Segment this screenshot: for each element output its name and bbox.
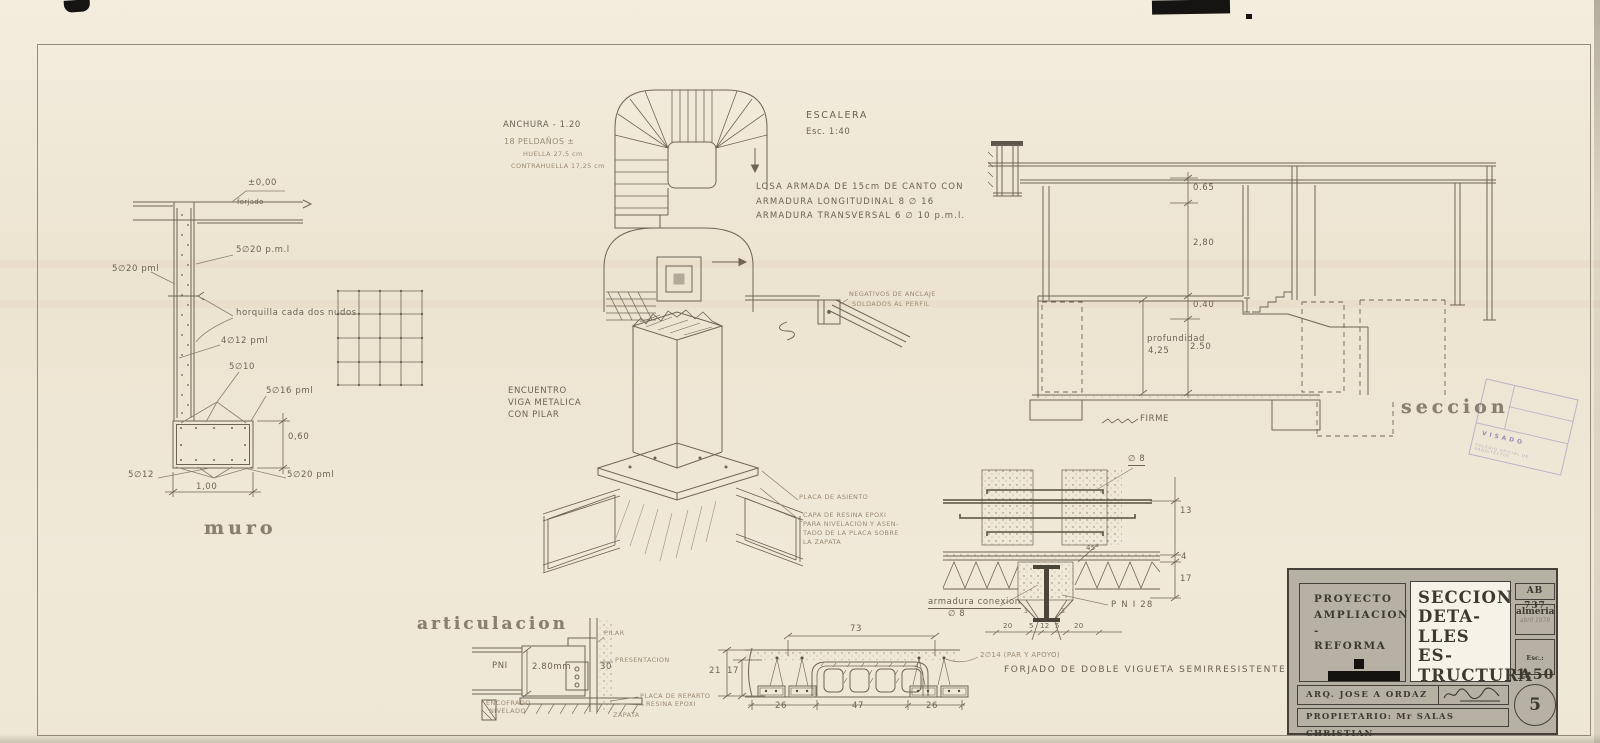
anchor-note-line1: NEGATIVOS DE ANCLAJE xyxy=(849,290,936,298)
losa-note-line2: ARMADURA LONGITUDINAL 8 ∅ 16 xyxy=(756,197,934,207)
muro-horquilla-label: horquilla cada dos nudos xyxy=(236,308,357,318)
scale-value: 1:50 xyxy=(1516,667,1554,683)
scan-mark xyxy=(1246,14,1252,19)
anchor-note-line2: SOLDADOS AL PERFIL xyxy=(852,300,930,308)
scale-label: Esc.: xyxy=(1526,654,1543,662)
vigueta-dim-17: 17 xyxy=(727,666,739,676)
forjado-dim-4: 4 xyxy=(1181,552,1187,562)
muro-dim-100: 1,00 xyxy=(196,482,217,492)
date-note: abril 1978 xyxy=(1516,618,1554,625)
losa-note-line3: ARMADURA TRANSVERSAL 6 ∅ 10 p.m.l. xyxy=(756,211,965,221)
resina-note-line3: TADO DE LA PLACA SOBRE xyxy=(803,529,899,537)
forjado-dim-17: 17 xyxy=(1180,574,1192,584)
scan-mark xyxy=(1152,0,1230,15)
stamp-line xyxy=(1509,407,1573,423)
muro-elevation-label: ±0,00 xyxy=(248,178,277,188)
placa-asiento-note: PLACA DE ASIENTO xyxy=(799,493,868,501)
encofrado-note-line1: ENCOFRADO xyxy=(486,699,531,707)
escalera-scale: Esc. 1:40 xyxy=(806,127,850,137)
vigueta-dim-26a: 26 xyxy=(775,701,787,711)
escalera-anchura-label: ANCHURA - 1.20 xyxy=(503,120,581,130)
signature-scribble xyxy=(1440,685,1510,704)
escalera-steps-note: 18 PELDAÑOS ± xyxy=(504,137,574,146)
vigueta-dim-47: 47 xyxy=(852,701,864,711)
seccion-dim-250: 2.50 xyxy=(1190,342,1211,352)
resina-note-line2: PARA NIVELACION Y ASEN- xyxy=(803,520,899,528)
escalera-contrahuella-note: CONTRAHUELLA 17,25 cm xyxy=(511,162,605,170)
owner-row: PROPIETARIO: Mr SALAS CHRISTIAN xyxy=(1297,708,1509,727)
resina-note-line1: CAPA DE RESINA EPOXI xyxy=(803,511,886,519)
resina-epoxi-note: RESINA EPOXI xyxy=(646,700,696,708)
architect-row: ARQ. JOSE A ORDAZ xyxy=(1297,685,1509,705)
architect-name: ARQ. JOSE A ORDAZ xyxy=(1306,690,1428,700)
project-code-cell: AB 737 xyxy=(1515,583,1555,600)
forjado-phi8-label: ∅ 8 xyxy=(1128,454,1145,466)
muro-rebar-label: 5∅20 pml xyxy=(112,264,159,274)
forjado-dim-20b: 20 xyxy=(1074,622,1084,630)
title-block: PROYECTO AMPLIACION - REFORMA SECCION DE… xyxy=(1287,568,1558,735)
seccion-dim-065: 0.65 xyxy=(1193,183,1214,193)
muro-title: muro xyxy=(204,517,277,539)
encuentro-title-line3: CON PILAR xyxy=(508,410,559,420)
articulacion-espesor: 2.80mm xyxy=(532,662,571,672)
muro-dim-060: 0,60 xyxy=(288,432,309,442)
articulacion-dim-30: 30 xyxy=(600,662,612,672)
vigueta-dim-26b: 26 xyxy=(926,701,938,711)
city-cell: almeria abril 1978 xyxy=(1515,604,1555,635)
vigueta-drawing xyxy=(695,612,1075,712)
forjado-angle-45: 45° xyxy=(1086,544,1099,552)
project-line2: AMPLIACION - xyxy=(1314,609,1409,637)
muro-rebar-label: 5∅16 pml xyxy=(266,386,313,396)
sheet-title-cell: SECCION DETA- LLES ES- TRUCTURA xyxy=(1410,581,1511,682)
seccion-dim-040: 0.40 xyxy=(1193,300,1214,310)
muro-rebar-label: 5∅10 xyxy=(229,362,255,372)
sheet-title-line3: LLES ES- xyxy=(1418,627,1470,665)
muro-forjado-label: forjado xyxy=(237,198,264,206)
articulacion-pni-label: PNI xyxy=(492,661,508,671)
presentacion-note: PRESENTACION xyxy=(615,656,670,664)
project-bar-mark xyxy=(1328,671,1400,681)
vigueta-dim-21: 21 xyxy=(709,666,721,676)
vigueta-dim-73: 73 xyxy=(850,624,862,634)
muro-rebar-label: 5∅20 pml xyxy=(287,470,334,480)
encuentro-drawing xyxy=(520,300,810,630)
owner-name: PROPIETARIO: Mr SALAS CHRISTIAN xyxy=(1306,712,1454,739)
seccion-dim-425: 4,25 xyxy=(1148,346,1169,356)
project-cell: PROYECTO AMPLIACION - REFORMA xyxy=(1299,583,1406,682)
zapata-note: ZAPATA xyxy=(613,711,640,719)
encuentro-title-line2: VIGA METALICA xyxy=(508,398,581,408)
articulacion-title: articulacion xyxy=(417,614,568,634)
muro-rebar-label: 4∅12 pml xyxy=(221,336,268,346)
forjado-dim-13: 13 xyxy=(1180,506,1192,516)
project-square-mark xyxy=(1354,659,1364,669)
sheet-number-badge: 5 xyxy=(1514,684,1556,726)
city-label: almeria xyxy=(1516,607,1555,617)
muro-rebar-label: 5∅20 p.m.l xyxy=(236,245,290,255)
vigueta-bars-note: 2∅14 (PAR Y APOYO) xyxy=(980,651,1060,659)
sheet-title-line2: DETA- xyxy=(1418,607,1481,626)
resina-note-line4: LA ZAPATA xyxy=(803,538,841,546)
blueprint-sheet: ±0,00 forjado 5∅20 p.m.l 5∅20 pml horqui… xyxy=(0,0,1600,743)
muro-rebar-label: 5∅12 xyxy=(128,470,154,480)
escalera-huella-note: HUELLA 27,5 cm xyxy=(523,150,583,158)
seccion-firme-label: FIRME xyxy=(1140,414,1169,424)
armadura-conexion-label: armadura conexion xyxy=(928,597,1021,609)
encofrado-note-line2: NIVELADO xyxy=(489,707,526,715)
project-line1: PROYECTO xyxy=(1314,593,1393,605)
architect-signature xyxy=(1438,685,1511,705)
project-line3: REFORMA xyxy=(1314,640,1386,652)
paper-edge-shadow xyxy=(1594,0,1600,743)
losa-note-line1: LOSA ARMADA DE 15cm DE CANTO CON xyxy=(756,182,964,192)
escalera-title: ESCALERA xyxy=(806,110,868,121)
seccion-dim-280: 2,80 xyxy=(1193,238,1214,248)
scan-mark xyxy=(64,0,91,13)
rebar-dots xyxy=(180,214,423,461)
scale-cell: Esc.: 1:50 xyxy=(1515,639,1555,675)
pni28-label: P N I 28 xyxy=(1111,600,1154,610)
encuentro-title-line1: ENCUENTRO xyxy=(508,386,567,396)
sheet-title-line1: SECCION xyxy=(1418,588,1513,607)
pilar-note: PILAR xyxy=(604,629,625,637)
